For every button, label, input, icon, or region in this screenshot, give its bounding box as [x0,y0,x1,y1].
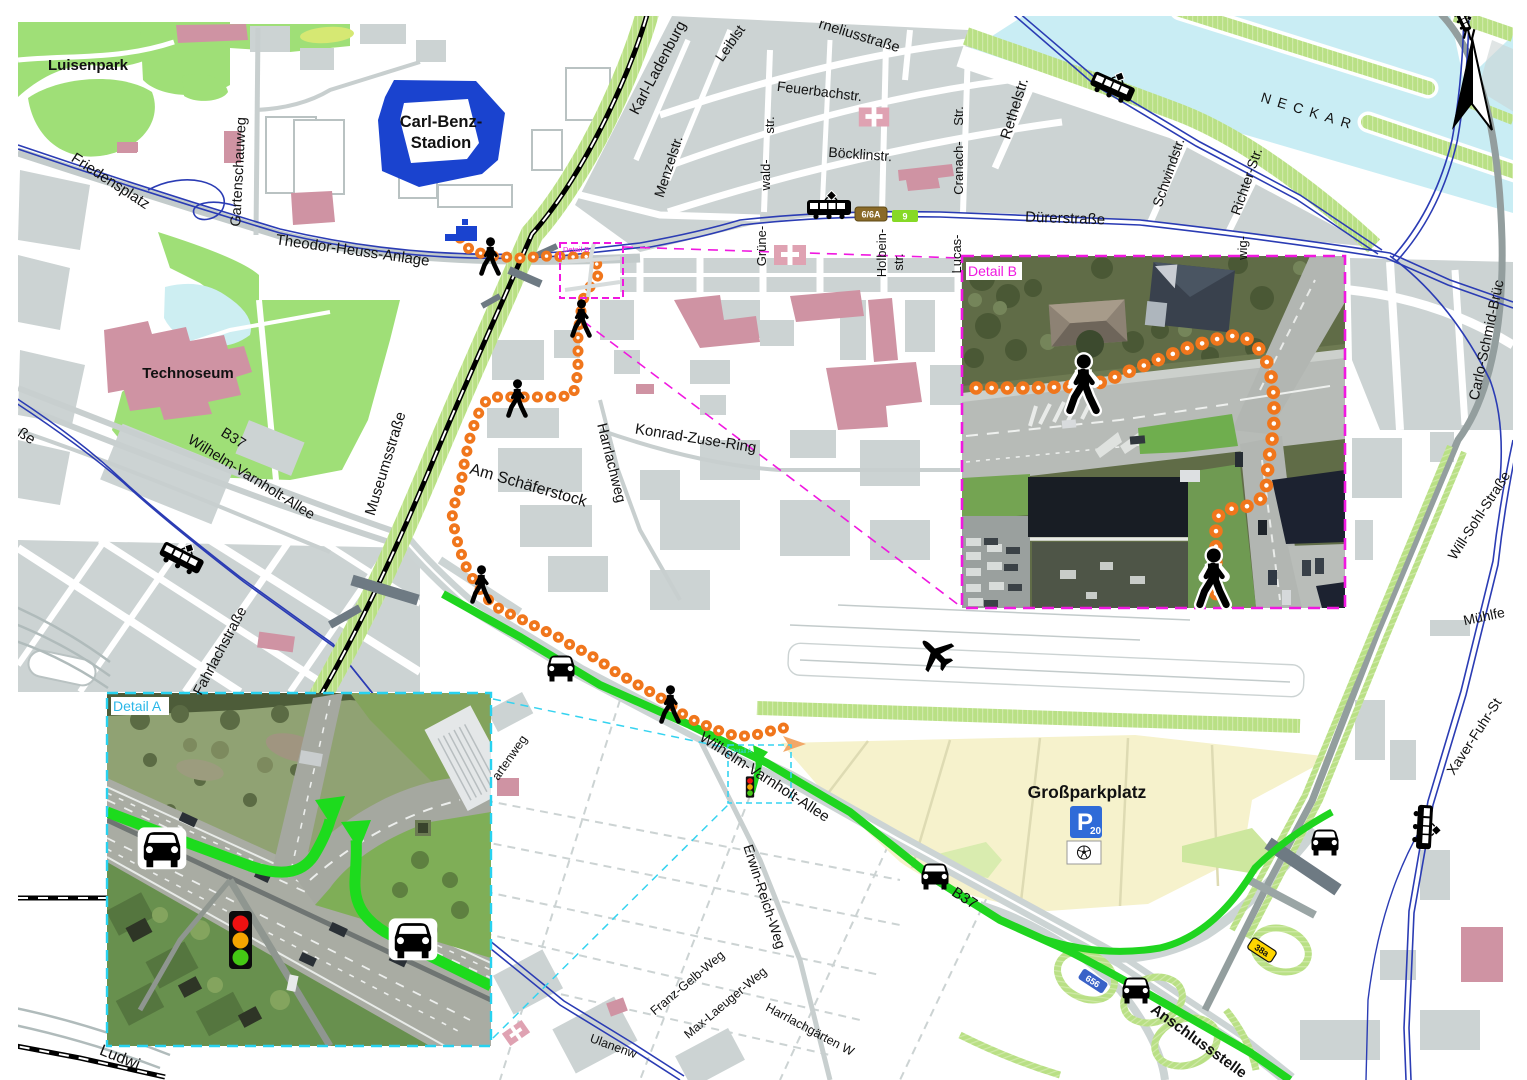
svg-text:20: 20 [1090,826,1102,837]
svg-text:str.: str. [891,253,906,270]
svg-text:Str.: Str. [951,106,966,126]
svg-text:Luisenpark: Luisenpark [48,57,129,74]
svg-text:Lucas-: Lucas- [949,234,964,273]
svg-text:Carl-Benz-: Carl-Benz- [400,113,483,131]
svg-text:wald-: wald- [758,159,773,191]
svg-text:str.: str. [762,116,777,133]
svg-text:Dürerstraße: Dürerstraße [1025,209,1106,229]
svg-text:Grüne-: Grüne- [754,226,769,266]
svg-text:Cranach-: Cranach- [951,141,966,194]
svg-text:Stadion: Stadion [411,134,472,152]
svg-text:9: 9 [902,212,907,222]
svg-text:Technoseum: Technoseum [142,365,233,382]
svg-text:wig-: wig- [1235,236,1250,261]
svg-text:Detail B: Detail B [563,245,589,254]
svg-text:Holbein-: Holbein- [874,229,889,277]
svg-text:Detail A: Detail A [113,698,162,714]
svg-text:6/6A: 6/6A [861,210,881,220]
svg-text:Detail B: Detail B [968,263,1017,279]
svg-text:Großparkplatz: Großparkplatz [1028,782,1147,802]
